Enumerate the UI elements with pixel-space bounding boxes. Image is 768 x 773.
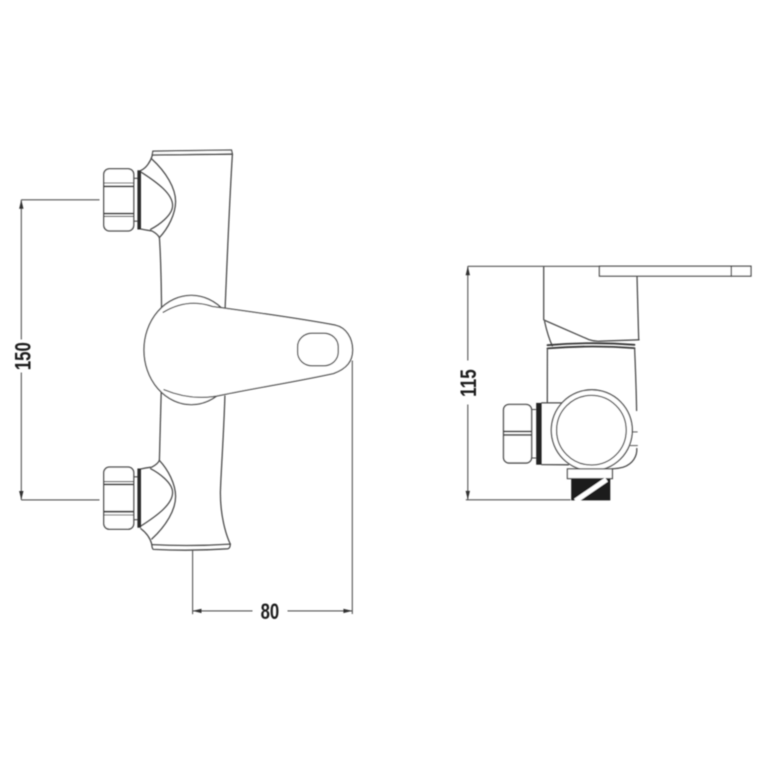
svg-text:150: 150 xyxy=(11,342,36,370)
svg-text:115: 115 xyxy=(457,369,482,397)
svg-text:80: 80 xyxy=(261,600,280,625)
